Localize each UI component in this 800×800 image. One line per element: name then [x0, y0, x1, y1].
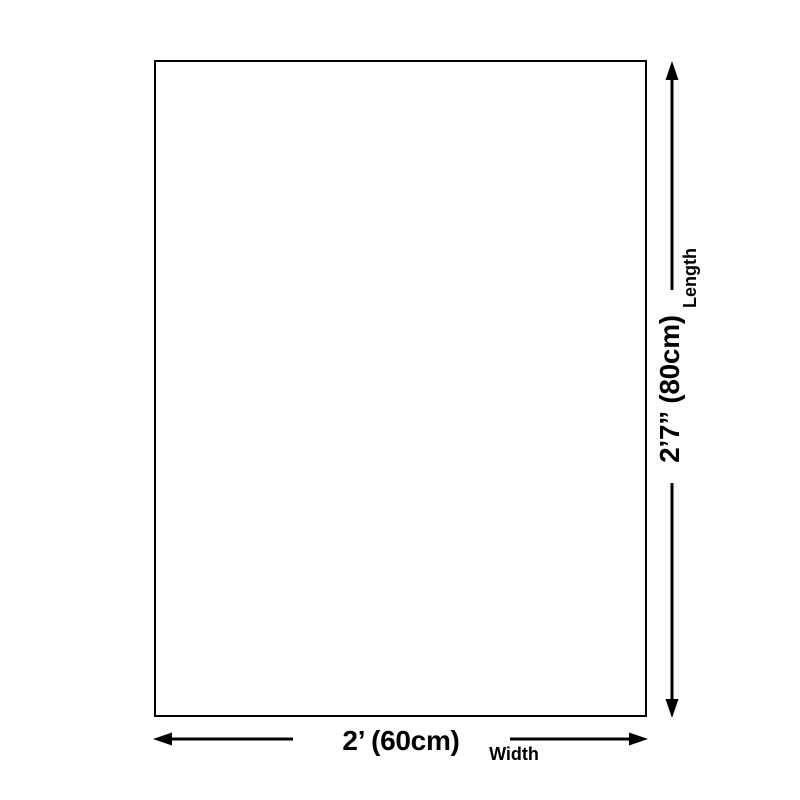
size-diagram: 2’7” (80cm) Length 2’ (60cm) Width [0, 0, 800, 800]
length-dimension-value: 2’7” (80cm) [656, 315, 684, 463]
width-dimension-label: Width [489, 745, 539, 763]
length-dimension-label: Length [681, 248, 699, 308]
width-dimension-value: 2’ (60cm) [342, 727, 459, 755]
